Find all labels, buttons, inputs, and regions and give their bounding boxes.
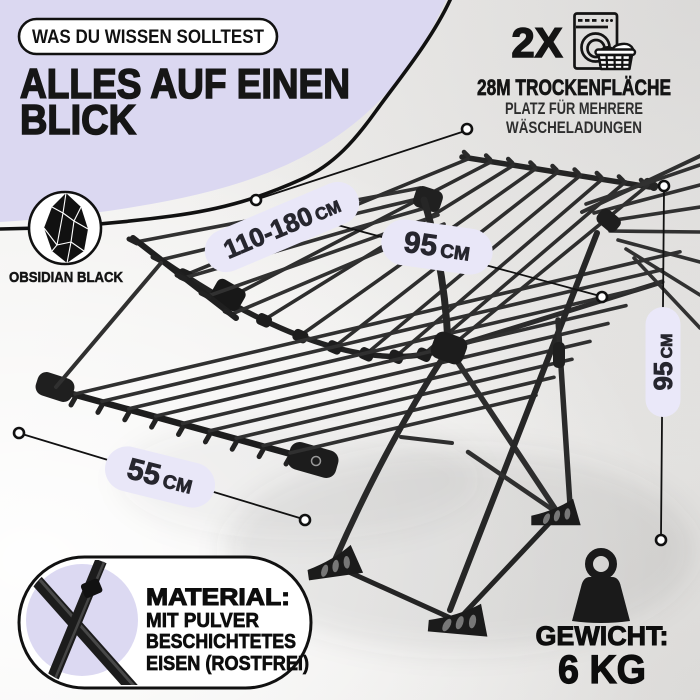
svg-text:WÄSCHELADUNGEN: WÄSCHELADUNGEN [506, 119, 642, 137]
svg-text:PLATZ FÜR MEHRERE: PLATZ FÜR MEHRERE [505, 99, 643, 118]
svg-text:EISEN (ROSTFREI): EISEN (ROSTFREI) [146, 653, 309, 675]
svg-text:BLICK: BLICK [20, 96, 136, 143]
svg-text:28M TROCKENFLÄCHE: 28M TROCKENFLÄCHE [477, 75, 671, 100]
svg-text:MIT PULVER: MIT PULVER [146, 610, 260, 632]
svg-text:MATERIAL:: MATERIAL: [146, 584, 290, 611]
svg-text:OBSIDIAN BLACK: OBSIDIAN BLACK [9, 270, 123, 286]
svg-text:BESCHICHTETES: BESCHICHTETES [146, 631, 296, 653]
svg-text:WAS DU WISSEN SOLLTEST: WAS DU WISSEN SOLLTEST [32, 27, 264, 48]
svg-text:6 KG: 6 KG [558, 648, 646, 692]
svg-text:2X: 2X [511, 19, 562, 66]
svg-text:GEWICHT:: GEWICHT: [536, 621, 669, 651]
